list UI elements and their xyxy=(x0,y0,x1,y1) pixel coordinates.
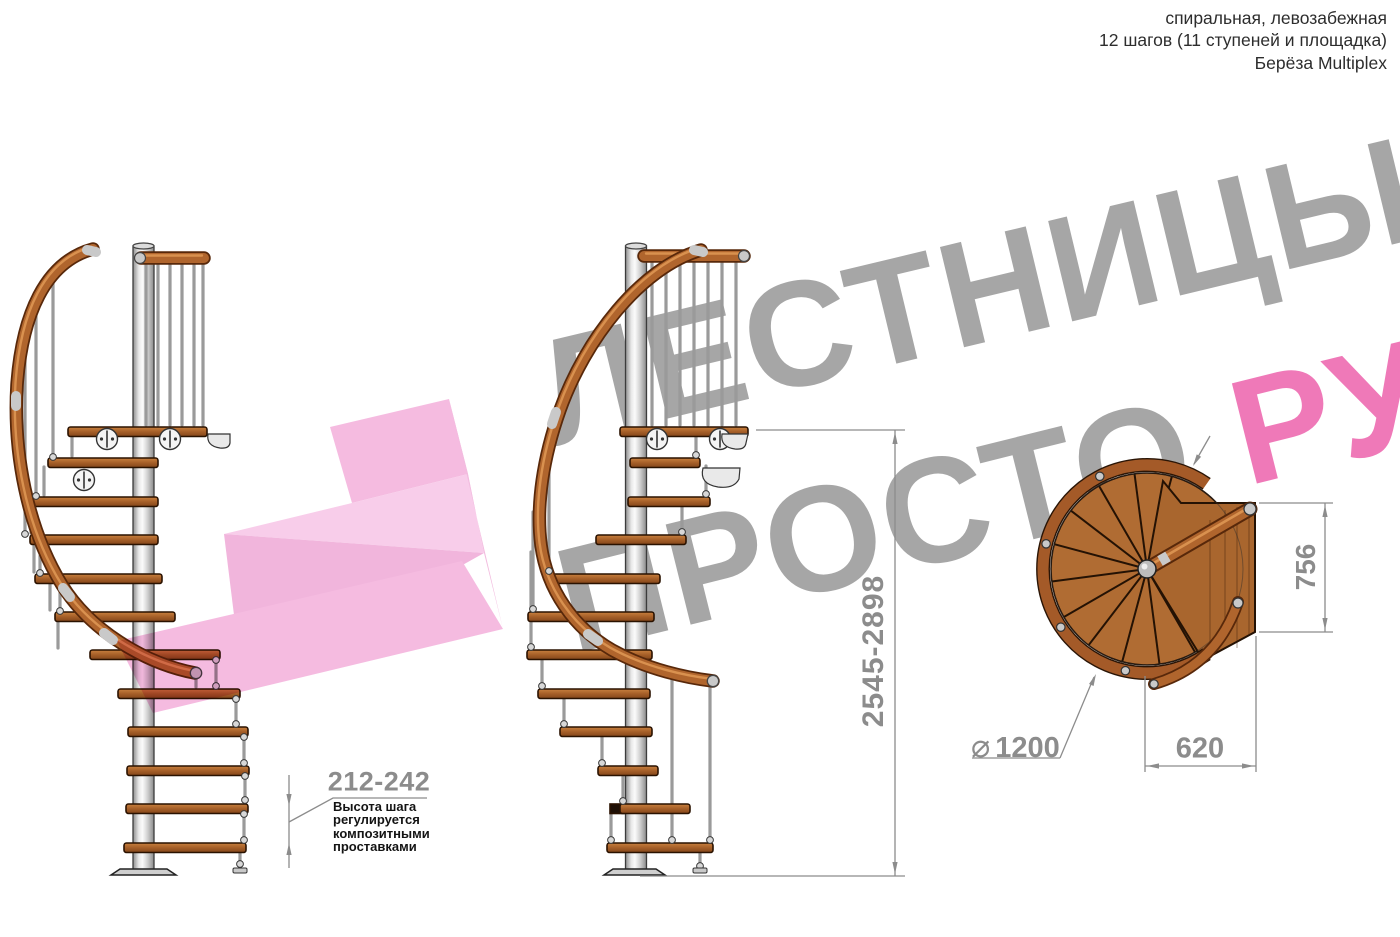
support-bracket xyxy=(208,434,230,448)
stair-material: Берёза Multiplex xyxy=(1099,52,1387,74)
title-block: спиральная, левозабежная 12 шагов (11 ст… xyxy=(1099,7,1387,74)
stair-type: спиральная, левозабежная xyxy=(1099,7,1387,29)
dim-landing-width: 620 xyxy=(1176,733,1224,766)
pole-base xyxy=(111,869,176,875)
pole-top xyxy=(1138,560,1156,578)
baluster-foot xyxy=(233,868,247,873)
tube-sleeve xyxy=(1160,556,1168,561)
dim-diameter: ⌀1200 xyxy=(971,727,1060,765)
baluster-foot xyxy=(693,868,707,873)
diameter-value: 1200 xyxy=(995,732,1060,765)
center-pole xyxy=(626,246,647,873)
front-view xyxy=(15,243,249,875)
dim-landing-depth: 756 xyxy=(1290,544,1322,591)
tube-end-cap xyxy=(1244,503,1256,515)
pole-base xyxy=(604,869,665,875)
landing-board xyxy=(68,427,207,437)
rail-end-cap xyxy=(707,675,718,686)
stair-steps: 12 шагов (11 ступеней и площадка) xyxy=(1099,29,1387,51)
plan-view xyxy=(1037,459,1256,688)
side-view xyxy=(527,243,750,875)
drawing-page: спиральная, левозабежная 12 шагов (11 ст… xyxy=(0,0,1400,937)
center-pole xyxy=(133,246,154,873)
diameter-icon: ⌀ xyxy=(971,727,990,765)
technical-drawing xyxy=(0,0,1400,937)
step-height-note: Высота шага регулируется композитными пр… xyxy=(333,800,430,854)
support-bracket xyxy=(702,468,740,487)
dim-step-height: 212-242 xyxy=(328,767,431,798)
rail-end-cap xyxy=(190,667,201,678)
dim-total-height: 2545-2898 xyxy=(857,575,891,727)
